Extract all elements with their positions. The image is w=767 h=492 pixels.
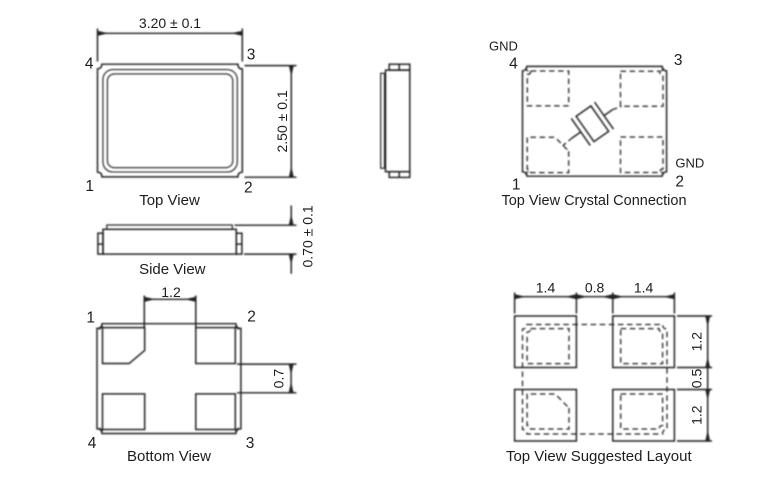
svg-text:0.7: 0.7 — [270, 369, 286, 389]
svg-text:3: 3 — [246, 435, 255, 452]
svg-text:GND: GND — [675, 155, 704, 170]
svg-text:2: 2 — [675, 173, 684, 190]
svg-text:1.2: 1.2 — [161, 284, 181, 300]
svg-text:4: 4 — [85, 56, 94, 73]
svg-text:GND: GND — [489, 38, 518, 53]
svg-text:0.8: 0.8 — [585, 280, 605, 296]
svg-text:1.2: 1.2 — [688, 332, 704, 352]
svg-text:0.5: 0.5 — [688, 369, 704, 389]
svg-text:3.20 ± 0.1: 3.20 ± 0.1 — [139, 15, 201, 31]
svg-text:4: 4 — [509, 56, 518, 73]
svg-text:0.70 ± 0.1: 0.70 ± 0.1 — [300, 205, 316, 267]
svg-text:1.4: 1.4 — [634, 280, 654, 296]
svg-text:4: 4 — [88, 435, 97, 452]
svg-text:Top View: Top View — [139, 192, 200, 209]
svg-text:2: 2 — [244, 180, 253, 197]
svg-text:2: 2 — [247, 309, 256, 326]
svg-text:3: 3 — [247, 47, 256, 64]
svg-text:Bottom View: Bottom View — [127, 448, 211, 465]
svg-text:1.2: 1.2 — [688, 405, 704, 425]
svg-text:2.50 ± 0.1: 2.50 ± 0.1 — [274, 90, 290, 152]
svg-text:3: 3 — [674, 52, 683, 69]
svg-text:Top View Suggested Layout: Top View Suggested Layout — [506, 448, 693, 465]
svg-text:Top View Crystal Connection: Top View Crystal Connection — [502, 192, 687, 209]
svg-text:1: 1 — [85, 178, 94, 195]
svg-text:1.4: 1.4 — [536, 280, 556, 296]
svg-text:Side View: Side View — [139, 261, 206, 278]
svg-text:1: 1 — [86, 310, 95, 327]
